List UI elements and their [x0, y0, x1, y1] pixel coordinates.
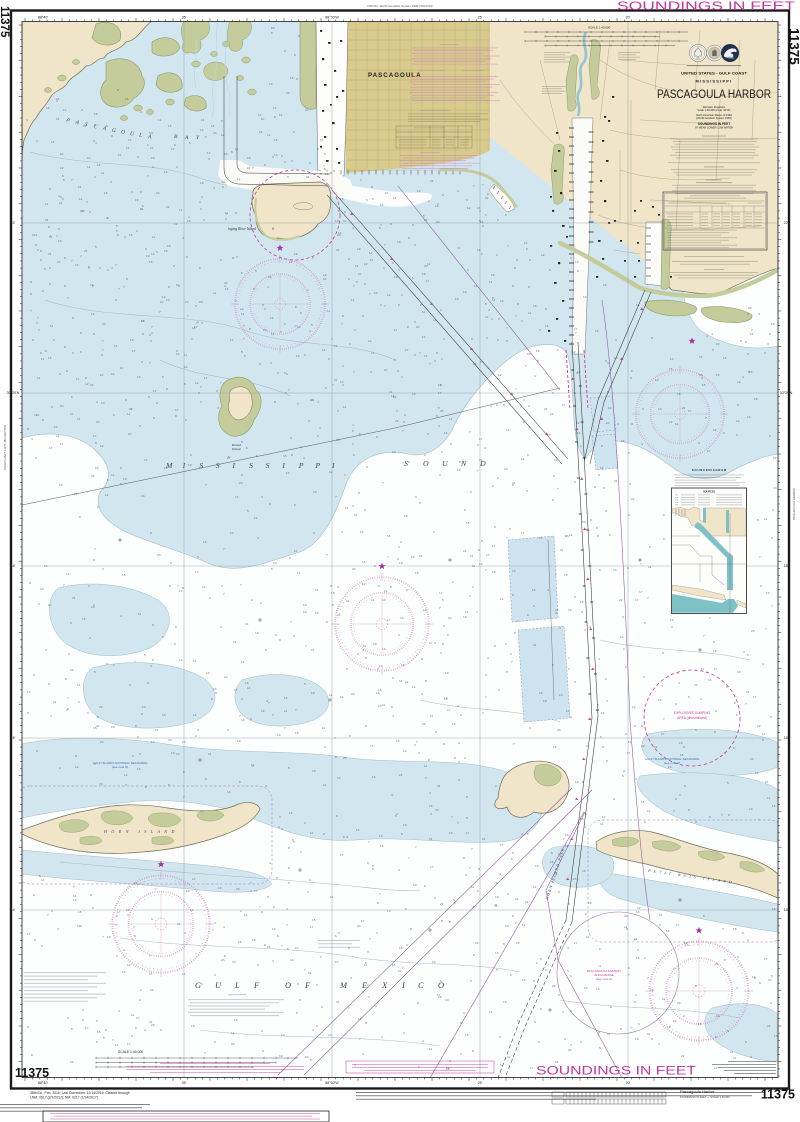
svg-text:21: 21 [482, 837, 486, 841]
svg-text:7: 7 [252, 166, 254, 170]
svg-text:8: 8 [570, 1009, 572, 1013]
svg-text:4: 4 [737, 955, 739, 959]
svg-text:13: 13 [51, 140, 55, 144]
svg-text:8: 8 [291, 453, 293, 457]
svg-text:6: 6 [514, 631, 516, 635]
svg-text:12: 12 [752, 975, 756, 979]
svg-text:8: 8 [141, 712, 143, 716]
svg-text:8: 8 [330, 584, 332, 588]
svg-text:12: 12 [389, 390, 393, 394]
svg-text:7: 7 [354, 328, 356, 332]
svg-text:8: 8 [215, 691, 217, 695]
svg-text:4: 4 [144, 1028, 146, 1032]
svg-text:6: 6 [294, 503, 296, 507]
svg-text:11: 11 [764, 517, 767, 521]
svg-text:19: 19 [312, 769, 316, 773]
svg-text:6: 6 [295, 305, 297, 309]
svg-text:3: 3 [113, 663, 115, 667]
svg-text:8: 8 [523, 420, 525, 424]
svg-text:4: 4 [463, 1011, 465, 1015]
svg-text:3: 3 [439, 473, 441, 477]
svg-text:7: 7 [759, 555, 761, 559]
svg-text:10: 10 [313, 490, 317, 494]
svg-text:21: 21 [177, 922, 181, 926]
svg-text:7: 7 [539, 989, 541, 993]
svg-text:21: 21 [765, 780, 769, 784]
svg-text:19: 19 [111, 725, 115, 729]
svg-text:8: 8 [620, 1027, 622, 1031]
svg-text:14: 14 [565, 833, 569, 837]
svg-text:11: 11 [429, 1047, 432, 1051]
svg-text:7: 7 [367, 983, 369, 987]
svg-text:13: 13 [601, 711, 605, 715]
svg-text:13: 13 [522, 978, 526, 982]
svg-text:5: 5 [449, 920, 451, 924]
svg-text:4: 4 [742, 375, 744, 379]
svg-text:5: 5 [276, 876, 278, 880]
svg-text:12: 12 [240, 307, 244, 311]
svg-text:3: 3 [160, 1028, 162, 1032]
svg-text:2: 2 [533, 604, 535, 608]
svg-text:3: 3 [736, 433, 738, 437]
svg-text:3: 3 [743, 650, 745, 654]
svg-text:13: 13 [422, 335, 426, 339]
svg-text:6: 6 [169, 584, 171, 588]
svg-text:9: 9 [48, 682, 50, 686]
svg-text:14: 14 [114, 344, 118, 348]
svg-text:7: 7 [281, 944, 283, 948]
svg-text:9: 9 [246, 446, 248, 450]
svg-text:17: 17 [310, 925, 314, 929]
svg-text:17: 17 [271, 332, 275, 336]
svg-text:9: 9 [336, 814, 338, 818]
svg-text:5: 5 [526, 489, 528, 493]
svg-text:15: 15 [274, 138, 278, 142]
svg-text:3: 3 [617, 422, 619, 426]
svg-text:12: 12 [541, 253, 545, 257]
svg-text:5: 5 [599, 568, 601, 572]
svg-text:21: 21 [45, 218, 49, 222]
svg-text:19: 19 [46, 106, 50, 110]
svg-text:11: 11 [34, 233, 37, 237]
svg-text:2: 2 [309, 161, 311, 165]
svg-text:8: 8 [529, 258, 531, 262]
svg-text:6: 6 [316, 1024, 318, 1028]
svg-text:6: 6 [638, 1022, 640, 1026]
svg-text:20': 20' [626, 1081, 631, 1085]
svg-text:7: 7 [94, 547, 96, 551]
svg-text:2: 2 [66, 708, 68, 712]
svg-text:12: 12 [76, 377, 80, 381]
svg-text:4: 4 [129, 683, 131, 687]
svg-text:5: 5 [622, 774, 624, 778]
svg-text:11: 11 [323, 783, 326, 787]
svg-text:2: 2 [59, 766, 61, 770]
svg-text:15: 15 [123, 477, 127, 481]
svg-text:14: 14 [533, 885, 537, 889]
svg-text:F: F [253, 980, 260, 990]
svg-text:9: 9 [582, 780, 584, 784]
svg-text:12: 12 [101, 171, 105, 175]
svg-text:9: 9 [156, 401, 158, 405]
svg-text:8: 8 [610, 1005, 612, 1009]
svg-text:6: 6 [106, 124, 108, 128]
svg-text:2: 2 [362, 314, 364, 318]
svg-text:19: 19 [650, 988, 654, 992]
svg-text:13: 13 [773, 486, 777, 490]
svg-text:15: 15 [97, 1030, 101, 1034]
svg-text:19: 19 [500, 299, 504, 303]
svg-text:6: 6 [253, 287, 255, 291]
svg-text:11: 11 [489, 280, 492, 284]
svg-text:5: 5 [470, 979, 472, 983]
svg-text:8: 8 [262, 1049, 264, 1053]
svg-text:13: 13 [506, 428, 510, 432]
svg-text:P: P [314, 461, 320, 470]
svg-text:14: 14 [284, 696, 288, 700]
svg-text:14: 14 [532, 588, 536, 592]
svg-text:5: 5 [494, 525, 496, 529]
svg-text:4: 4 [140, 988, 142, 992]
svg-text:6: 6 [183, 770, 185, 774]
svg-text:5: 5 [311, 323, 313, 327]
svg-text:8: 8 [663, 513, 665, 517]
svg-text:3: 3 [362, 990, 364, 994]
svg-text:3: 3 [466, 198, 468, 202]
svg-text:U: U [215, 980, 222, 990]
svg-text:2: 2 [120, 482, 122, 486]
svg-text:19: 19 [373, 642, 377, 646]
svg-text:9: 9 [214, 1040, 216, 1044]
svg-text:17: 17 [235, 495, 239, 499]
svg-text:3: 3 [457, 704, 459, 708]
svg-text:6: 6 [131, 1034, 133, 1038]
svg-text:4: 4 [404, 413, 406, 417]
svg-text:23: 23 [102, 322, 106, 326]
svg-text:19: 19 [137, 375, 141, 379]
svg-text:3: 3 [622, 615, 624, 619]
svg-text:7: 7 [334, 736, 336, 740]
svg-text:13: 13 [449, 417, 453, 421]
svg-text:7: 7 [73, 885, 75, 889]
svg-text:23: 23 [157, 553, 161, 557]
svg-text:15: 15 [702, 383, 706, 387]
svg-text:3: 3 [552, 391, 554, 395]
svg-text:10: 10 [303, 603, 307, 607]
svg-text:12: 12 [279, 113, 283, 117]
svg-text:9: 9 [512, 593, 514, 597]
svg-text:5: 5 [466, 816, 468, 820]
svg-text:8: 8 [441, 919, 443, 923]
svg-text:6: 6 [294, 53, 296, 57]
svg-text:19: 19 [255, 631, 259, 635]
svg-text:19: 19 [279, 1054, 283, 1058]
svg-text:3: 3 [257, 963, 259, 967]
svg-text:10: 10 [358, 272, 362, 276]
svg-text:35': 35' [182, 16, 187, 20]
svg-text:8: 8 [771, 536, 773, 540]
svg-text:13: 13 [141, 494, 145, 498]
svg-text:4: 4 [421, 692, 423, 696]
svg-text:8: 8 [503, 403, 505, 407]
svg-text:7: 7 [149, 954, 151, 958]
svg-text:15: 15 [129, 233, 133, 237]
svg-text:12: 12 [174, 222, 178, 226]
svg-text:13: 13 [575, 260, 579, 264]
svg-text:15: 15 [699, 373, 703, 377]
svg-text:10: 10 [187, 219, 191, 223]
svg-text:8: 8 [145, 785, 147, 789]
svg-text:3: 3 [316, 983, 318, 987]
svg-text:17: 17 [688, 409, 692, 413]
svg-text:7: 7 [703, 634, 705, 638]
svg-text:19: 19 [449, 831, 453, 835]
svg-text:17: 17 [429, 641, 433, 645]
svg-text:11: 11 [294, 549, 297, 553]
svg-text:11: 11 [467, 206, 470, 210]
svg-text:4: 4 [528, 404, 530, 408]
svg-text:9: 9 [492, 484, 494, 488]
svg-text:3: 3 [208, 157, 210, 161]
svg-text:6: 6 [551, 851, 553, 855]
svg-text:15: 15 [749, 370, 753, 374]
svg-text:17: 17 [480, 360, 484, 364]
svg-text:8: 8 [503, 942, 505, 946]
svg-text:C: C [418, 980, 424, 990]
svg-text:7: 7 [123, 285, 125, 289]
svg-text:7: 7 [451, 815, 453, 819]
svg-text:9: 9 [186, 255, 188, 259]
svg-text:10: 10 [495, 895, 499, 899]
svg-text:14: 14 [600, 466, 604, 470]
svg-text:2: 2 [357, 652, 359, 656]
svg-text:10: 10 [186, 889, 190, 893]
svg-text:11: 11 [150, 146, 153, 150]
svg-text:9: 9 [677, 671, 679, 675]
svg-text:7: 7 [415, 845, 417, 849]
svg-text:3: 3 [324, 745, 326, 749]
svg-text:88°40': 88°40' [38, 1081, 48, 1085]
svg-text:4: 4 [269, 861, 271, 865]
svg-text:4: 4 [312, 1028, 314, 1032]
svg-text:6: 6 [205, 777, 207, 781]
svg-text:8: 8 [166, 387, 168, 391]
svg-text:3: 3 [41, 944, 43, 948]
svg-text:15: 15 [372, 775, 376, 779]
svg-text:12: 12 [179, 658, 183, 662]
svg-text:15: 15 [641, 800, 645, 804]
svg-text:12: 12 [521, 457, 525, 461]
svg-text:17: 17 [93, 434, 97, 438]
svg-text:3: 3 [241, 473, 243, 477]
svg-text:F: F [304, 980, 311, 990]
svg-text:8: 8 [377, 901, 379, 905]
svg-text:8: 8 [454, 756, 456, 760]
svg-text:14: 14 [149, 972, 153, 976]
svg-text:9: 9 [574, 595, 576, 599]
svg-text:3: 3 [287, 175, 289, 179]
svg-text:6: 6 [736, 713, 738, 717]
svg-text:6: 6 [40, 351, 42, 355]
svg-text:9: 9 [424, 884, 426, 888]
svg-text:8: 8 [634, 1000, 636, 1004]
svg-text:5: 5 [142, 332, 144, 336]
svg-text:4: 4 [124, 235, 126, 239]
svg-text:6: 6 [51, 909, 53, 913]
svg-text:7: 7 [673, 809, 675, 813]
svg-text:9: 9 [651, 1037, 653, 1041]
svg-text:8: 8 [232, 256, 234, 260]
svg-text:11: 11 [311, 648, 314, 652]
svg-text:8: 8 [75, 754, 77, 758]
svg-text:11: 11 [600, 822, 603, 826]
svg-text:10: 10 [87, 156, 91, 160]
svg-text:4: 4 [440, 308, 442, 312]
svg-text:10: 10 [263, 328, 267, 332]
svg-text:11: 11 [184, 353, 187, 357]
svg-text:14: 14 [202, 585, 206, 589]
svg-text:7: 7 [112, 1038, 114, 1042]
svg-text:7: 7 [471, 847, 473, 851]
svg-text:SCALE 1:40,000: SCALE 1:40,000 [118, 1050, 143, 1054]
svg-text:8: 8 [152, 623, 154, 627]
svg-text:5: 5 [496, 968, 498, 972]
svg-text:8: 8 [406, 588, 408, 592]
svg-text:3: 3 [584, 628, 586, 632]
svg-text:23: 23 [305, 1055, 309, 1059]
svg-text:8: 8 [107, 478, 109, 482]
svg-text:8: 8 [605, 509, 607, 513]
svg-text:11375: 11375 [15, 1066, 49, 1080]
svg-text:8: 8 [271, 31, 273, 35]
svg-text:6: 6 [113, 413, 115, 417]
svg-text:9: 9 [715, 1035, 717, 1039]
svg-text:9: 9 [96, 1019, 98, 1023]
svg-text:4: 4 [140, 110, 142, 114]
svg-text:8: 8 [168, 285, 170, 289]
svg-text:8: 8 [466, 795, 468, 799]
svg-text:9: 9 [465, 873, 467, 877]
svg-text:7: 7 [485, 568, 487, 572]
svg-text:23: 23 [337, 613, 341, 617]
svg-text:3: 3 [477, 443, 479, 447]
svg-text:9: 9 [30, 280, 32, 284]
svg-text:10: 10 [281, 1033, 285, 1037]
svg-text:11: 11 [56, 97, 59, 101]
svg-text:4: 4 [102, 567, 104, 571]
svg-text:6: 6 [469, 594, 471, 598]
svg-text:8: 8 [358, 491, 360, 495]
svg-text:8: 8 [152, 658, 154, 662]
svg-text:2: 2 [422, 1039, 424, 1043]
svg-text:19: 19 [553, 745, 557, 749]
svg-text:11: 11 [152, 235, 155, 239]
svg-text:4: 4 [265, 784, 267, 788]
svg-text:6: 6 [703, 914, 705, 918]
svg-text:8: 8 [740, 339, 742, 343]
svg-text:12: 12 [773, 456, 777, 460]
svg-text:6: 6 [497, 338, 499, 342]
svg-text:8: 8 [135, 724, 137, 728]
svg-text:6: 6 [527, 453, 529, 457]
svg-text:21: 21 [463, 549, 467, 553]
svg-text:8: 8 [365, 724, 367, 728]
svg-text:8: 8 [175, 414, 177, 418]
svg-text:7: 7 [506, 536, 508, 540]
svg-text:14: 14 [297, 325, 301, 329]
svg-text:6: 6 [627, 566, 629, 570]
svg-text:9: 9 [298, 34, 300, 38]
svg-text:17: 17 [387, 618, 391, 622]
svg-text:12: 12 [124, 773, 128, 777]
svg-text:7: 7 [568, 656, 570, 660]
svg-text:5: 5 [695, 728, 697, 732]
svg-text:11: 11 [399, 679, 402, 683]
svg-text:10: 10 [505, 924, 509, 928]
svg-text:21: 21 [682, 406, 686, 410]
svg-text:7: 7 [250, 881, 252, 885]
svg-text:10: 10 [176, 752, 180, 756]
svg-text:8: 8 [419, 501, 421, 505]
svg-text:19: 19 [130, 338, 134, 342]
svg-text:6: 6 [724, 751, 726, 755]
svg-text:15: 15 [122, 573, 126, 577]
svg-text:3: 3 [434, 896, 436, 900]
svg-text:12: 12 [423, 608, 427, 612]
svg-text:15: 15 [550, 860, 554, 864]
svg-text:8: 8 [153, 416, 155, 420]
svg-text:7: 7 [771, 604, 773, 608]
svg-text:4: 4 [272, 959, 274, 963]
svg-text:14: 14 [115, 1043, 119, 1047]
svg-text:21: 21 [544, 407, 548, 411]
svg-text:8: 8 [471, 337, 473, 341]
svg-text:14: 14 [393, 395, 397, 399]
svg-text:11: 11 [45, 202, 48, 206]
svg-text:5: 5 [105, 1028, 107, 1032]
svg-text:7: 7 [353, 284, 355, 288]
svg-text:4: 4 [223, 925, 225, 929]
svg-text:15: 15 [754, 397, 758, 401]
svg-text:8: 8 [528, 285, 530, 289]
svg-text:13: 13 [412, 392, 416, 396]
svg-text:17: 17 [295, 946, 299, 950]
svg-text:19: 19 [673, 1019, 677, 1023]
svg-text:21: 21 [405, 680, 409, 684]
svg-text:15: 15 [238, 940, 242, 944]
svg-text:L: L [234, 980, 240, 990]
svg-text:5: 5 [36, 749, 38, 753]
svg-text:10: 10 [582, 520, 586, 524]
svg-text:12: 12 [329, 470, 333, 474]
svg-text:4: 4 [368, 995, 370, 999]
svg-text:7: 7 [628, 973, 630, 977]
svg-text:23: 23 [231, 1042, 235, 1046]
svg-text:10: 10 [272, 927, 276, 931]
svg-text:15: 15 [580, 600, 584, 604]
svg-text:7: 7 [284, 726, 286, 730]
svg-text:7: 7 [469, 866, 471, 870]
svg-text:17: 17 [676, 923, 680, 927]
svg-text:8: 8 [267, 895, 269, 899]
svg-text:14: 14 [176, 352, 180, 356]
svg-text:4: 4 [317, 400, 319, 404]
svg-text:10: 10 [658, 407, 662, 411]
svg-text:17: 17 [479, 437, 483, 441]
svg-text:11: 11 [647, 809, 650, 813]
svg-text:12: 12 [254, 516, 258, 520]
svg-text:12: 12 [322, 348, 326, 352]
